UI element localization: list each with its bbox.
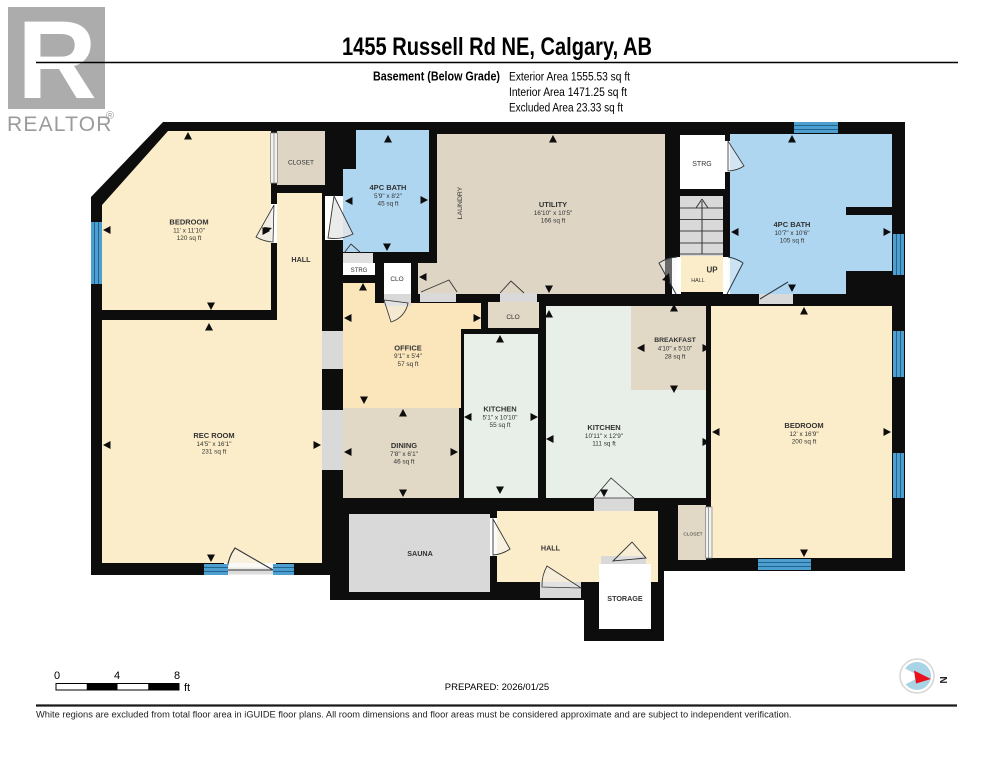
svg-text:166 sq ft: 166 sq ft xyxy=(541,218,566,225)
svg-text:KITCHEN: KITCHEN xyxy=(483,405,516,414)
svg-text:111 sq ft: 111 sq ft xyxy=(592,441,616,448)
svg-text:200 sq ft: 200 sq ft xyxy=(792,439,817,446)
svg-text:10'7" x 10'6": 10'7" x 10'6" xyxy=(774,230,809,237)
svg-text:28 sq ft: 28 sq ft xyxy=(665,354,686,361)
svg-text:OFFICE: OFFICE xyxy=(394,344,422,353)
svg-text:ft: ft xyxy=(184,682,190,694)
svg-text:4PC BATH: 4PC BATH xyxy=(774,220,811,229)
svg-text:CLOSET: CLOSET xyxy=(683,532,702,538)
svg-text:CLO: CLO xyxy=(390,276,403,283)
svg-text:CLO: CLO xyxy=(506,314,519,321)
svg-text:4PC BATH: 4PC BATH xyxy=(370,183,407,192)
svg-text:STRG: STRG xyxy=(351,268,368,274)
svg-text:5'1" x 10'10": 5'1" x 10'10" xyxy=(482,414,517,421)
svg-text:STORAGE: STORAGE xyxy=(607,594,643,603)
svg-text:231 sq ft: 231 sq ft xyxy=(202,449,227,456)
svg-text:HALL: HALL xyxy=(291,255,311,264)
svg-text:HALL: HALL xyxy=(691,278,705,284)
svg-text:46 sq ft: 46 sq ft xyxy=(394,459,415,466)
svg-text:R: R xyxy=(17,0,96,122)
svg-text:SAUNA: SAUNA xyxy=(407,549,433,558)
svg-text:Excluded Area 23.33 sq ft: Excluded Area 23.33 sq ft xyxy=(509,101,623,115)
svg-text:5'9" x 8'2": 5'9" x 8'2" xyxy=(374,193,402,200)
svg-text:Exterior Area 1555.53 sq ft: Exterior Area 1555.53 sq ft xyxy=(509,70,630,84)
svg-text:BEDROOM: BEDROOM xyxy=(784,421,823,430)
svg-text:4: 4 xyxy=(114,670,120,682)
svg-text:7'8" x 6'1": 7'8" x 6'1" xyxy=(390,451,418,458)
svg-text:REALTOR: REALTOR xyxy=(7,113,113,136)
svg-text:16'10" x 10'5": 16'10" x 10'5" xyxy=(534,210,573,217)
svg-text:White regions are excluded fro: White regions are excluded from total fl… xyxy=(36,710,792,720)
svg-text:BREAKFAST: BREAKFAST xyxy=(654,337,696,344)
svg-text:KITCHEN: KITCHEN xyxy=(587,423,620,432)
svg-text:55 sq ft: 55 sq ft xyxy=(490,422,511,429)
svg-text:12' x 16'9": 12' x 16'9" xyxy=(789,431,818,438)
svg-text:10'11" x 12'9": 10'11" x 12'9" xyxy=(585,433,623,440)
svg-text:PREPARED: 2026/01/25: PREPARED: 2026/01/25 xyxy=(445,682,549,693)
svg-text:DINING: DINING xyxy=(391,441,417,450)
svg-text:UP: UP xyxy=(706,266,718,275)
svg-text:1455 Russell Rd NE, Calgary, A: 1455 Russell Rd NE, Calgary, AB xyxy=(342,33,652,61)
svg-text:8: 8 xyxy=(174,670,180,682)
svg-text:4'10" x 5'10": 4'10" x 5'10" xyxy=(658,346,693,353)
svg-text:105 sq ft: 105 sq ft xyxy=(780,238,805,245)
svg-text:BEDROOM: BEDROOM xyxy=(169,218,208,227)
svg-text:®: ® xyxy=(106,110,114,122)
svg-text:Interior Area 1471.25 sq ft: Interior Area 1471.25 sq ft xyxy=(509,85,627,99)
svg-text:CLOSET: CLOSET xyxy=(288,159,314,166)
svg-text:N: N xyxy=(937,676,948,683)
svg-text:57 sq ft: 57 sq ft xyxy=(398,361,419,368)
svg-text:45 sq ft: 45 sq ft xyxy=(378,201,399,208)
svg-text:14'5" x 16'1": 14'5" x 16'1" xyxy=(196,441,231,448)
svg-text:9'1" x 5'4": 9'1" x 5'4" xyxy=(394,353,422,360)
svg-text:UTILITY: UTILITY xyxy=(539,200,567,209)
svg-text:REC ROOM: REC ROOM xyxy=(193,431,234,440)
svg-text:11' x 11'10": 11' x 11'10" xyxy=(173,228,205,235)
svg-text:HALL: HALL xyxy=(541,544,561,553)
svg-text:120 sq ft: 120 sq ft xyxy=(177,235,202,242)
svg-text:LAUNDRY: LAUNDRY xyxy=(457,186,464,219)
svg-text:Basement (Below Grade): Basement (Below Grade) xyxy=(373,69,500,84)
svg-text:0: 0 xyxy=(54,670,60,682)
svg-text:STRG: STRG xyxy=(692,161,711,168)
